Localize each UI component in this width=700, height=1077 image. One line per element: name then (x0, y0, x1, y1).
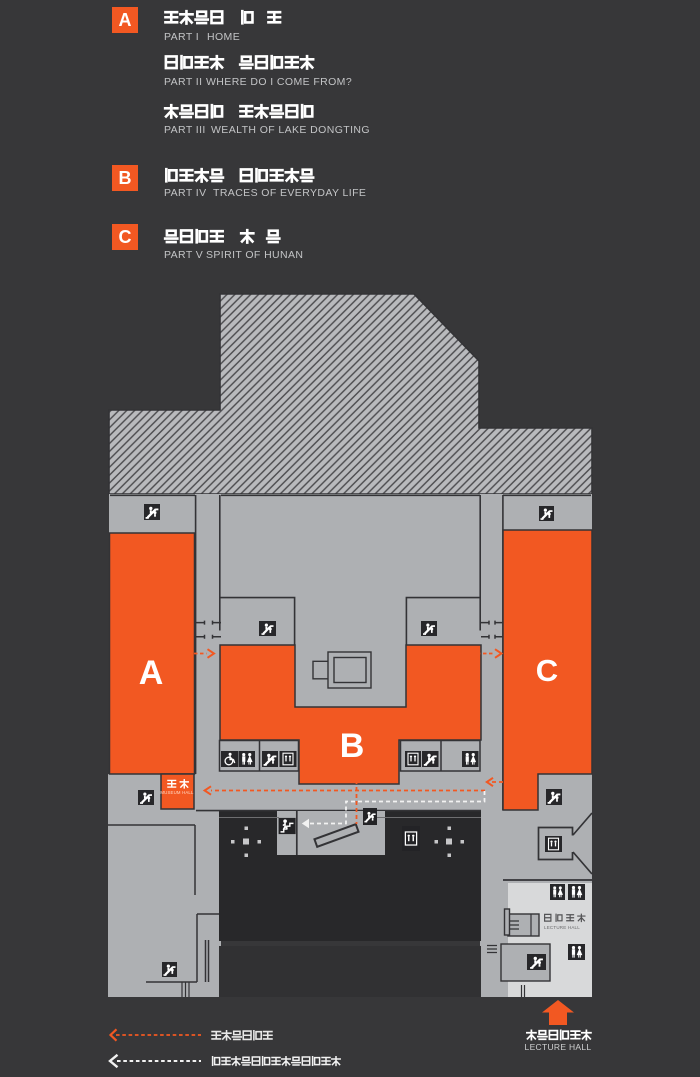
svg-text:PART II: PART II (164, 76, 202, 88)
svg-text:WHERE DO I COME FROM?: WHERE DO I COME FROM? (206, 76, 352, 88)
svg-text:B: B (119, 168, 132, 188)
svg-text:TRACES OF EVERYDAY LIFE: TRACES OF EVERYDAY LIFE (213, 187, 366, 199)
svg-text:LECTURE HALL: LECTURE HALL (544, 925, 580, 930)
svg-text:LECTURE HALL: LECTURE HALL (525, 1042, 592, 1052)
svg-text:PART I: PART I (164, 31, 199, 43)
svg-text:PART III: PART III (164, 124, 206, 136)
svg-text:C: C (119, 227, 132, 247)
svg-text:HOME: HOME (207, 31, 240, 43)
svg-text:C: C (536, 653, 558, 688)
svg-text:PART IV: PART IV (164, 187, 206, 199)
svg-text:A: A (119, 10, 132, 30)
svg-text:A: A (139, 654, 164, 692)
svg-text:SPIRIT OF HUNAN: SPIRIT OF HUNAN (206, 249, 303, 261)
svg-text:B: B (340, 727, 365, 765)
svg-text:WEALTH OF LAKE DONGTING: WEALTH OF LAKE DONGTING (211, 124, 370, 136)
svg-text:MUSEUM HALL: MUSEUM HALL (160, 790, 194, 795)
svg-text:PART V: PART V (164, 249, 203, 261)
